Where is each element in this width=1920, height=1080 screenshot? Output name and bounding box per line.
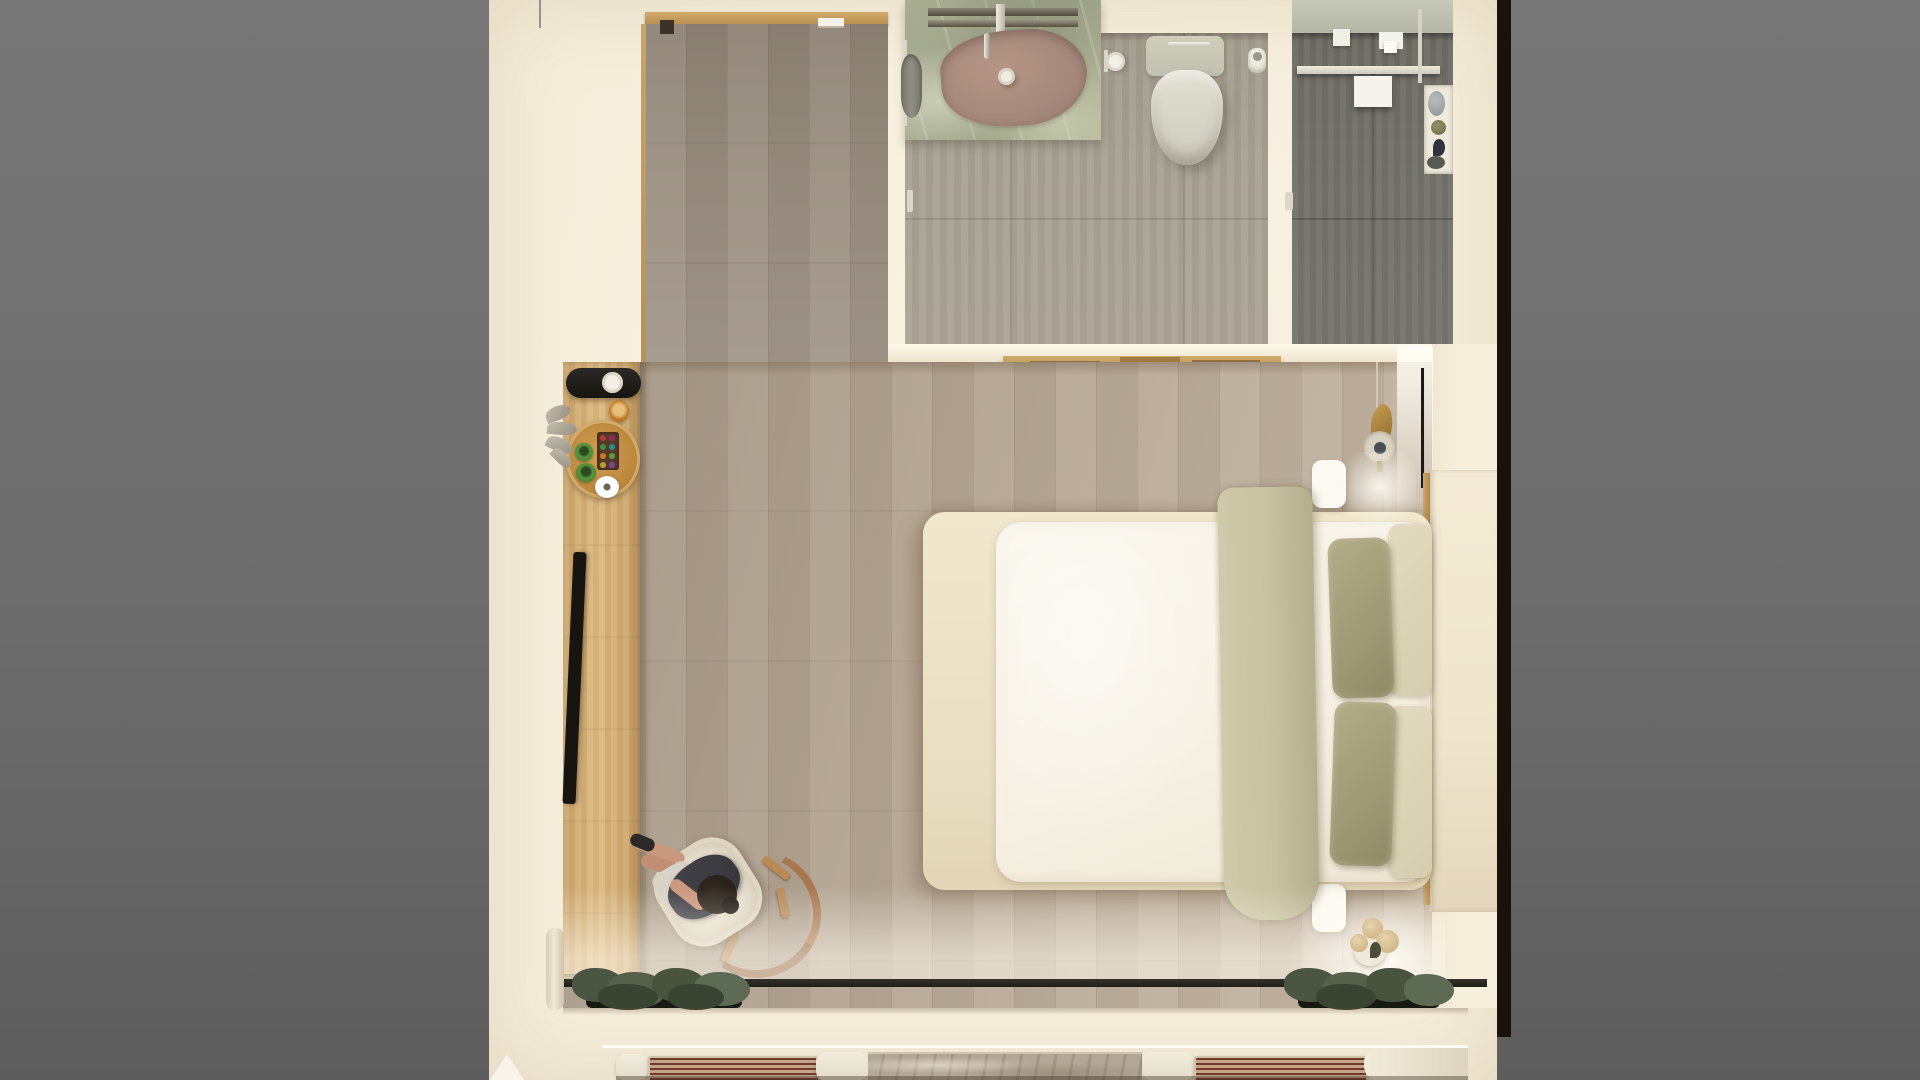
shower-head-panel <box>1354 76 1392 107</box>
plant-foliage <box>598 984 658 1010</box>
door-stopper <box>660 20 674 34</box>
flower-dish <box>595 476 619 498</box>
coffee-capsule <box>609 444 615 450</box>
headboard <box>1430 470 1497 912</box>
pillow-cream-top <box>1388 524 1432 696</box>
decor-ball <box>1350 934 1368 952</box>
bottom-cut-shadow <box>616 1076 1468 1080</box>
mirror-post <box>996 4 1005 34</box>
corridor-floor <box>645 24 888 362</box>
green-mug <box>576 463 596 482</box>
shower-mixer <box>1333 29 1350 46</box>
faucet <box>984 33 990 59</box>
hand-towel <box>901 54 922 118</box>
toilet-paper-roll <box>1106 52 1125 71</box>
toiletry-bottle <box>1427 156 1445 169</box>
sill-shadow <box>563 1008 1468 1015</box>
bathroom-grout-line <box>905 218 1268 220</box>
toilet-brush-top <box>1253 52 1262 61</box>
toiletry-bottle <box>1428 91 1445 116</box>
green-mug <box>575 443 593 461</box>
wall-panel-gap <box>1421 368 1424 488</box>
floor-light-patch <box>1336 452 1416 530</box>
coffee-capsule <box>600 462 606 468</box>
door-handle <box>907 190 913 212</box>
corridor-wood-edge <box>641 24 646 362</box>
basin-drain <box>998 68 1015 85</box>
wall-probe-line <box>539 0 541 28</box>
shower-ledge <box>1292 0 1453 33</box>
door-latch <box>818 18 844 28</box>
pillow-olive-bottom <box>1329 701 1397 867</box>
plant-foliage <box>668 984 724 1010</box>
pendant-rope <box>1376 362 1378 410</box>
bedroom-wall-shadow <box>563 362 1432 375</box>
plant-foliage <box>1316 984 1376 1010</box>
window-column <box>546 928 564 1010</box>
coffee-capsule <box>609 453 615 459</box>
bathroom-grout-line <box>1010 140 1012 344</box>
coffee-capsule <box>600 453 606 459</box>
toilet-flush-plate <box>1168 42 1210 47</box>
right-wall-edge <box>1497 0 1511 1037</box>
coffee-cup <box>602 372 623 393</box>
coffee-capsule <box>609 435 615 441</box>
latte-cup <box>609 400 629 422</box>
coffee-capsule <box>609 462 615 468</box>
toiletry-bottle <box>1433 139 1445 156</box>
pillow-olive-top <box>1327 537 1395 699</box>
plant-foliage <box>1404 974 1454 1006</box>
coffee-capsule <box>600 444 606 450</box>
sill-highlight-line <box>602 1045 1468 1048</box>
render-canvas <box>0 0 1920 1080</box>
glass-door-hinge <box>1285 192 1293 210</box>
toiletry-bottle <box>1431 120 1446 135</box>
decor-leaf <box>1370 942 1381 958</box>
shower-mixer-knob <box>1384 41 1397 53</box>
shower-rail <box>1418 9 1422 83</box>
coffee-capsule <box>600 435 606 441</box>
throw-runner <box>1217 486 1320 921</box>
